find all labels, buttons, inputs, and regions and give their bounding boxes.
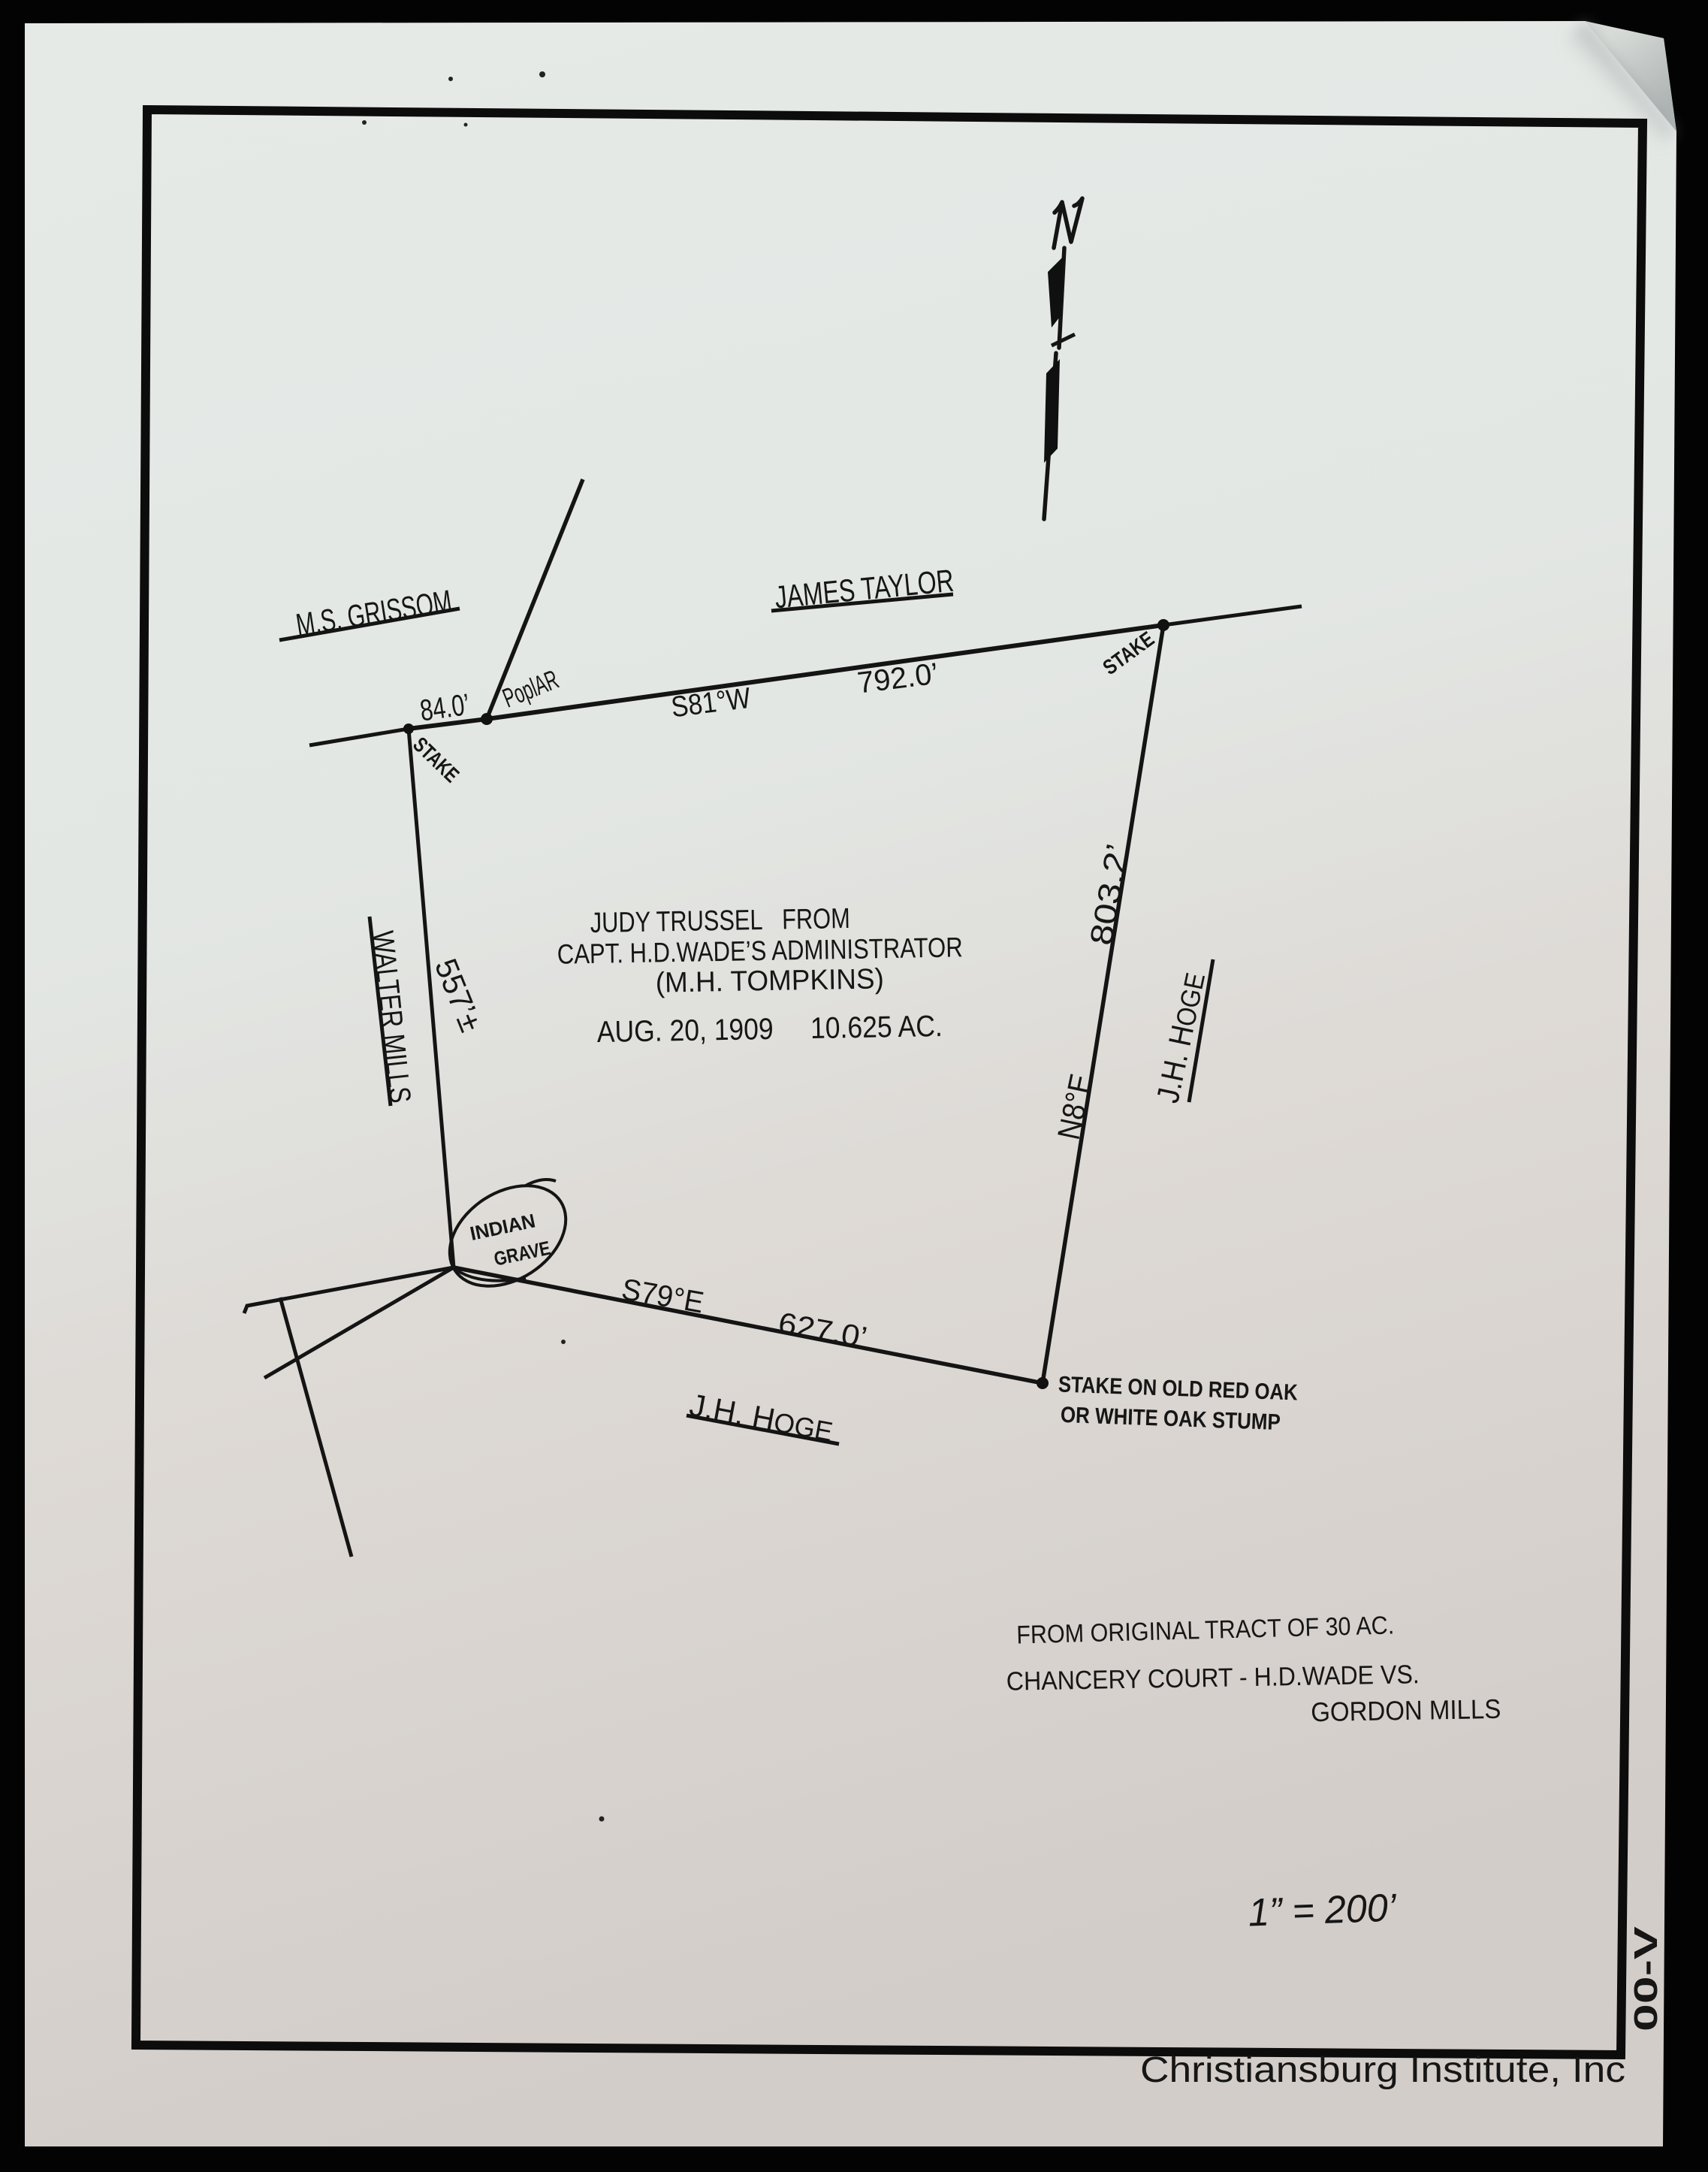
svg-text:AUG. 20, 1909 10.625 AC.: AUG. 20, 1909 10.625 AC. <box>596 1010 943 1049</box>
svg-text:00-V: 00-V <box>1628 1926 1664 2032</box>
svg-text:Christiansburg Institute, Inc: Christiansburg Institute, Inc <box>1140 2050 1625 2090</box>
svg-text:GORDON MILLS: GORDON MILLS <box>1311 1693 1501 1727</box>
svg-text:84.0’: 84.0’ <box>418 688 471 728</box>
svg-text:JUDY TRUSSEL FROM: JUDY TRUSSEL FROM <box>590 903 850 939</box>
svg-text:1” = 200’: 1” = 200’ <box>1248 1887 1398 1935</box>
svg-text:(M.H. TOMPKINS): (M.H. TOMPKINS) <box>655 963 884 998</box>
